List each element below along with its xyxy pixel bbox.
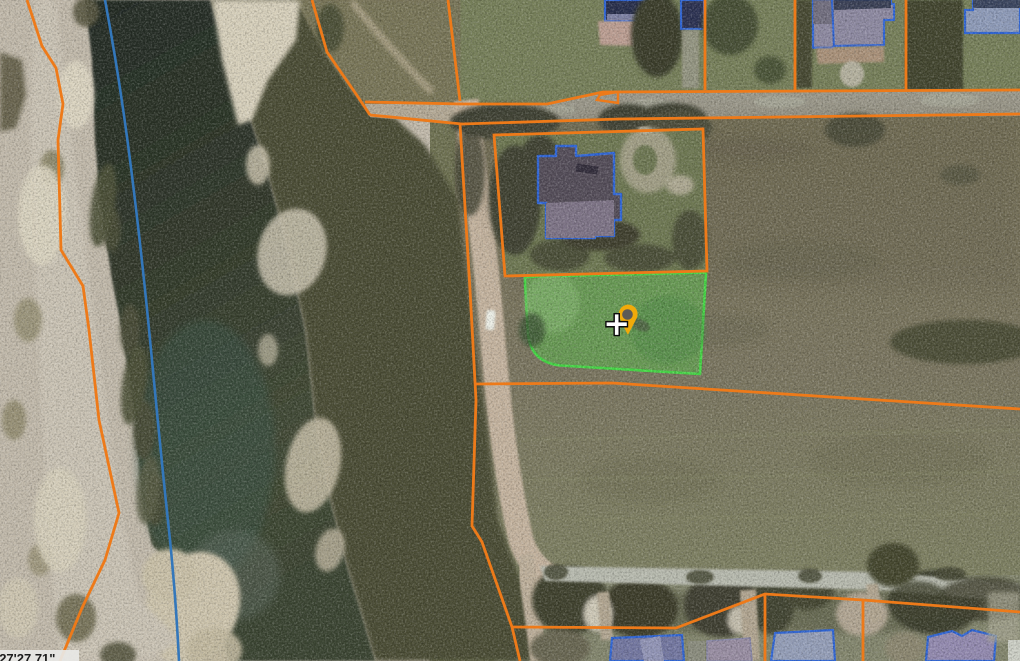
svg-text:°27'27.71": °27'27.71"	[0, 651, 55, 661]
